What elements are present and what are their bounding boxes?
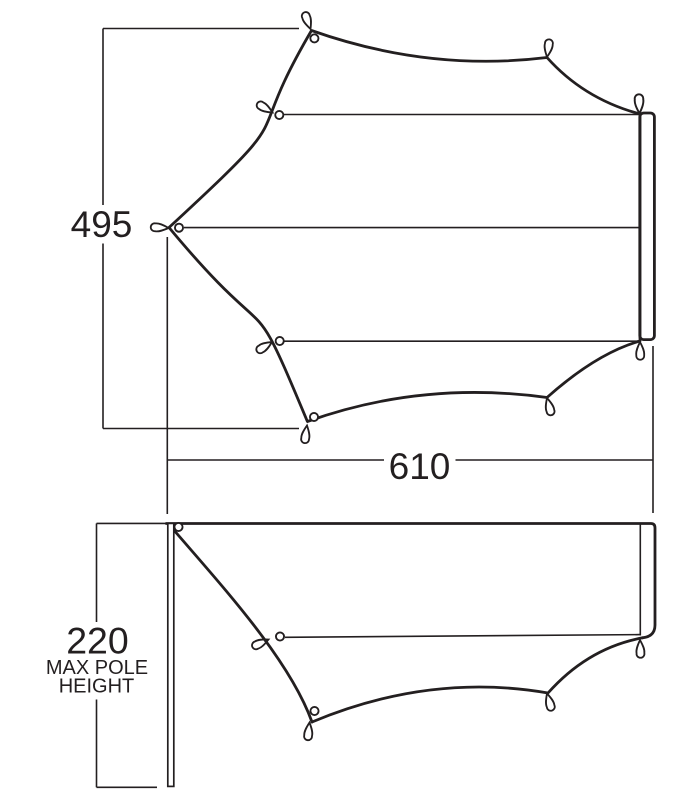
svg-text:610: 610: [389, 446, 451, 487]
svg-text:HEIGHT: HEIGHT: [59, 675, 135, 697]
svg-text:495: 495: [71, 204, 133, 245]
svg-text:220: 220: [66, 620, 129, 662]
